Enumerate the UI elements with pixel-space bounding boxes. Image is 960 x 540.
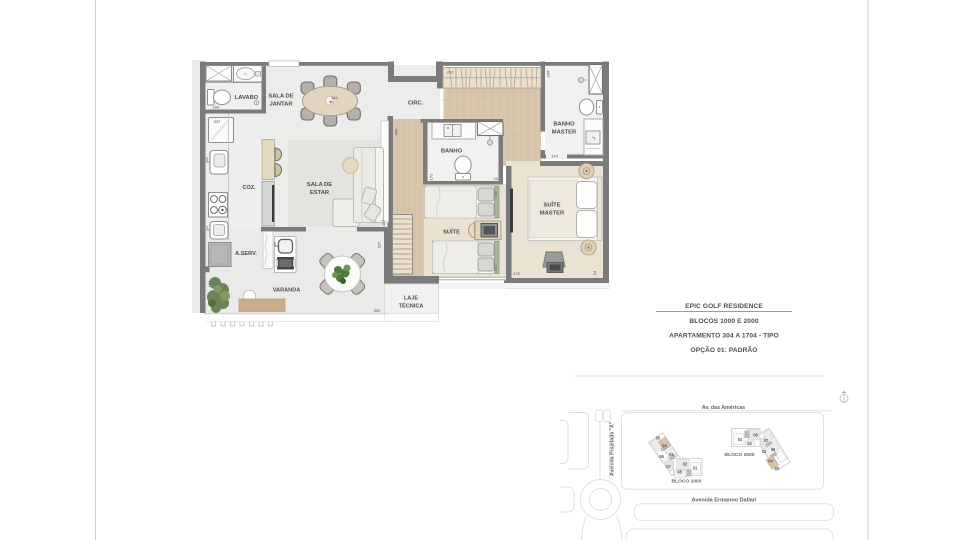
svg-text:07: 07 <box>764 438 769 443</box>
svg-text:ESTAR: ESTAR <box>310 190 330 196</box>
svg-text:SUÍTE: SUÍTE <box>443 228 460 236</box>
svg-text:285: 285 <box>493 264 498 271</box>
svg-text:502: 502 <box>374 308 381 313</box>
svg-text:02: 02 <box>747 441 752 446</box>
svg-text:MASTER: MASTER <box>552 130 577 136</box>
svg-text:285: 285 <box>493 190 498 197</box>
svg-text:Avenida Ermanno Dallari: Avenida Ermanno Dallari <box>692 498 757 504</box>
svg-text:34: 34 <box>592 270 597 275</box>
svg-text:COZ.: COZ. <box>242 185 256 191</box>
svg-text:JANTAR: JANTAR <box>269 102 293 108</box>
svg-text:BANHO: BANHO <box>553 122 575 128</box>
svg-text:537: 537 <box>214 119 221 124</box>
svg-text:CIRC.: CIRC. <box>408 101 424 107</box>
svg-text:06: 06 <box>771 447 776 452</box>
svg-text:SALA DE: SALA DE <box>307 182 332 188</box>
svg-text:BANHO: BANHO <box>441 149 463 155</box>
svg-text:BLOCO 1000: BLOCO 1000 <box>672 479 702 485</box>
svg-text:MASTER: MASTER <box>540 211 565 217</box>
svg-text:02: 02 <box>683 462 688 467</box>
svg-text:03: 03 <box>762 449 767 454</box>
svg-text:BLOCO 2000: BLOCO 2000 <box>725 452 755 458</box>
svg-text:A.SERV.: A.SERV. <box>235 251 257 257</box>
svg-text:174: 174 <box>551 154 558 159</box>
svg-text:VARANDA: VARANDA <box>273 288 301 294</box>
svg-text:05: 05 <box>775 466 780 471</box>
svg-text:05: 05 <box>656 435 661 440</box>
svg-text:07: 07 <box>666 464 671 469</box>
svg-text:Av. das Américas: Av. das Américas <box>702 405 745 411</box>
svg-text:04: 04 <box>768 459 773 464</box>
svg-text:04: 04 <box>662 443 667 448</box>
svg-text:03: 03 <box>669 452 674 457</box>
svg-text:205: 205 <box>546 70 551 77</box>
svg-text:08: 08 <box>677 469 682 474</box>
svg-text:BLOCOS 1000 E 2000: BLOCOS 1000 E 2000 <box>689 318 758 325</box>
svg-text:SUÍTE: SUÍTE <box>543 201 560 209</box>
svg-text:LAJE: LAJE <box>404 296 419 302</box>
svg-text:172: 172 <box>429 173 434 180</box>
svg-text:08: 08 <box>753 432 758 437</box>
svg-text:292: 292 <box>447 70 454 75</box>
svg-text:104: 104 <box>207 280 212 287</box>
svg-text:224: 224 <box>494 176 501 181</box>
svg-text:467: 467 <box>381 219 386 226</box>
svg-text:LAVABO: LAVABO <box>235 95 259 101</box>
svg-text:499: 499 <box>394 128 399 135</box>
svg-text:APARTAMENTO 304 A 1704 - TIPO: APARTAMENTO 304 A 1704 - TIPO <box>669 333 779 340</box>
svg-text:168: 168 <box>213 105 220 110</box>
svg-text:162: 162 <box>331 95 338 100</box>
svg-text:01: 01 <box>738 437 743 442</box>
svg-text:SALA DE: SALA DE <box>268 94 293 100</box>
svg-text:OPÇÃO 01: PADRÃO: OPÇÃO 01: PADRÃO <box>690 345 757 354</box>
svg-text:EPIC GOLF RESIDENCE: EPIC GOLF RESIDENCE <box>685 303 763 310</box>
svg-text:275: 275 <box>513 271 520 276</box>
svg-text:06: 06 <box>659 454 664 459</box>
svg-text:TÉCNICA: TÉCNICA <box>399 302 424 310</box>
svg-text:01: 01 <box>693 465 698 470</box>
svg-text:227: 227 <box>377 241 382 248</box>
svg-text:Avenida Projetada "A": Avenida Projetada "A" <box>610 421 616 476</box>
